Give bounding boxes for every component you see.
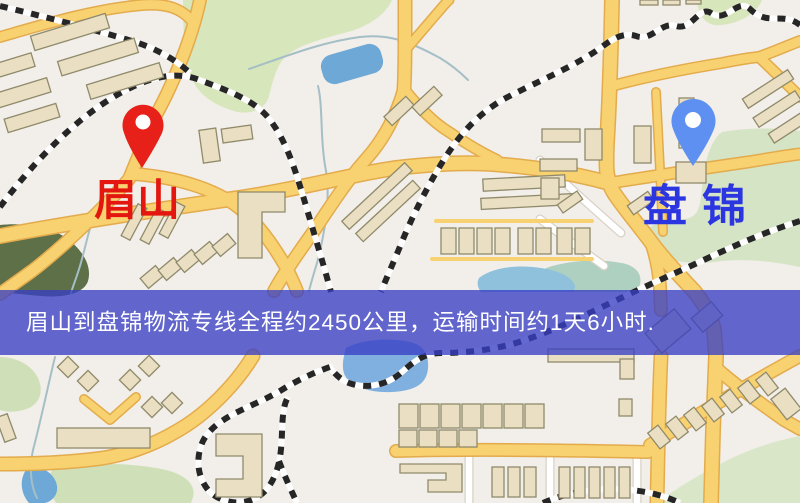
- pin-hole: [685, 112, 701, 128]
- origin-city-label: 眉山: [94, 177, 180, 225]
- map-viewport[interactable]: 眉山 盘锦 眉山到盘锦物流专线全程约2450公里，运输时间约1天6小时.: [0, 0, 800, 503]
- map-image[interactable]: 眉山 盘锦 眉山到盘锦物流专线全程约2450公里，运输时间约1天6小时.: [0, 0, 800, 503]
- destination-city-label: 盘锦: [643, 182, 761, 231]
- route-info-banner: 眉山到盘锦物流专线全程约2450公里，运输时间约1天6小时.: [0, 290, 800, 355]
- pin-hole: [136, 115, 151, 130]
- route-info-text: 眉山到盘锦物流专线全程约2450公里，运输时间约1天6小时.: [26, 310, 655, 335]
